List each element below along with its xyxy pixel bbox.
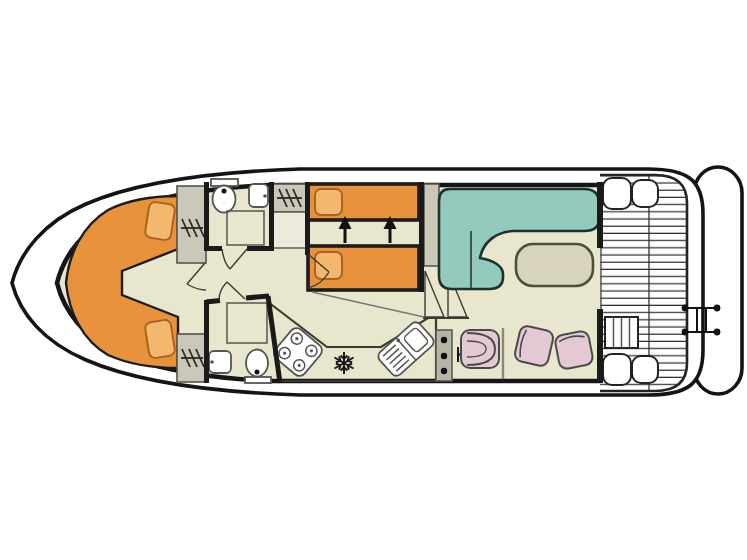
wardrobe-bow-lower [177, 334, 206, 382]
helm-seat [461, 330, 499, 368]
floor-plan-canvas [0, 0, 747, 560]
wall-bath-fore-bottom [204, 246, 222, 251]
deck-corner-seat [603, 354, 631, 385]
deck-steps-icon [605, 317, 638, 348]
wall-bath-aft-top [206, 301, 220, 303]
saloon-table [516, 244, 593, 286]
console-dot [441, 337, 447, 343]
berth-pillow [315, 252, 342, 279]
deck-corner-seat [632, 356, 658, 383]
toilet-flush-dot [255, 370, 260, 375]
wall-bath-fore-right [269, 182, 274, 250]
deck-corner-seat [632, 180, 658, 207]
berth-pillow [144, 201, 175, 241]
wall-stern-bottom [597, 309, 603, 383]
deck-corner-seat [603, 178, 631, 209]
berth-pillow [315, 189, 342, 215]
floor-plan-page [0, 0, 747, 560]
wall-bath-fore-bottom [247, 246, 274, 251]
dining-chair [554, 330, 594, 370]
toilet-cistern [245, 377, 271, 383]
console-dot [441, 353, 447, 359]
wall-bath-aft-left [204, 300, 209, 383]
toilet-flush-dot [222, 189, 227, 194]
wall-bath-aft-top [246, 296, 269, 298]
wardrobe-twin-cabin [272, 184, 306, 248]
dresser-cupboard [272, 212, 306, 248]
wall-twin-cabin-left [305, 182, 310, 255]
wall-stern-top [597, 182, 603, 248]
tall-cupboard [424, 184, 439, 266]
sink-faucet-dot [263, 194, 267, 198]
wall-twin-cabin-right [419, 182, 424, 292]
wardrobe-bow-upper [177, 186, 206, 263]
wall-bath-fore-left [204, 182, 209, 250]
sink-faucet-dot [210, 360, 214, 364]
console-dot [441, 368, 447, 374]
berth-pillow [144, 319, 175, 359]
dining-chair [513, 325, 554, 368]
